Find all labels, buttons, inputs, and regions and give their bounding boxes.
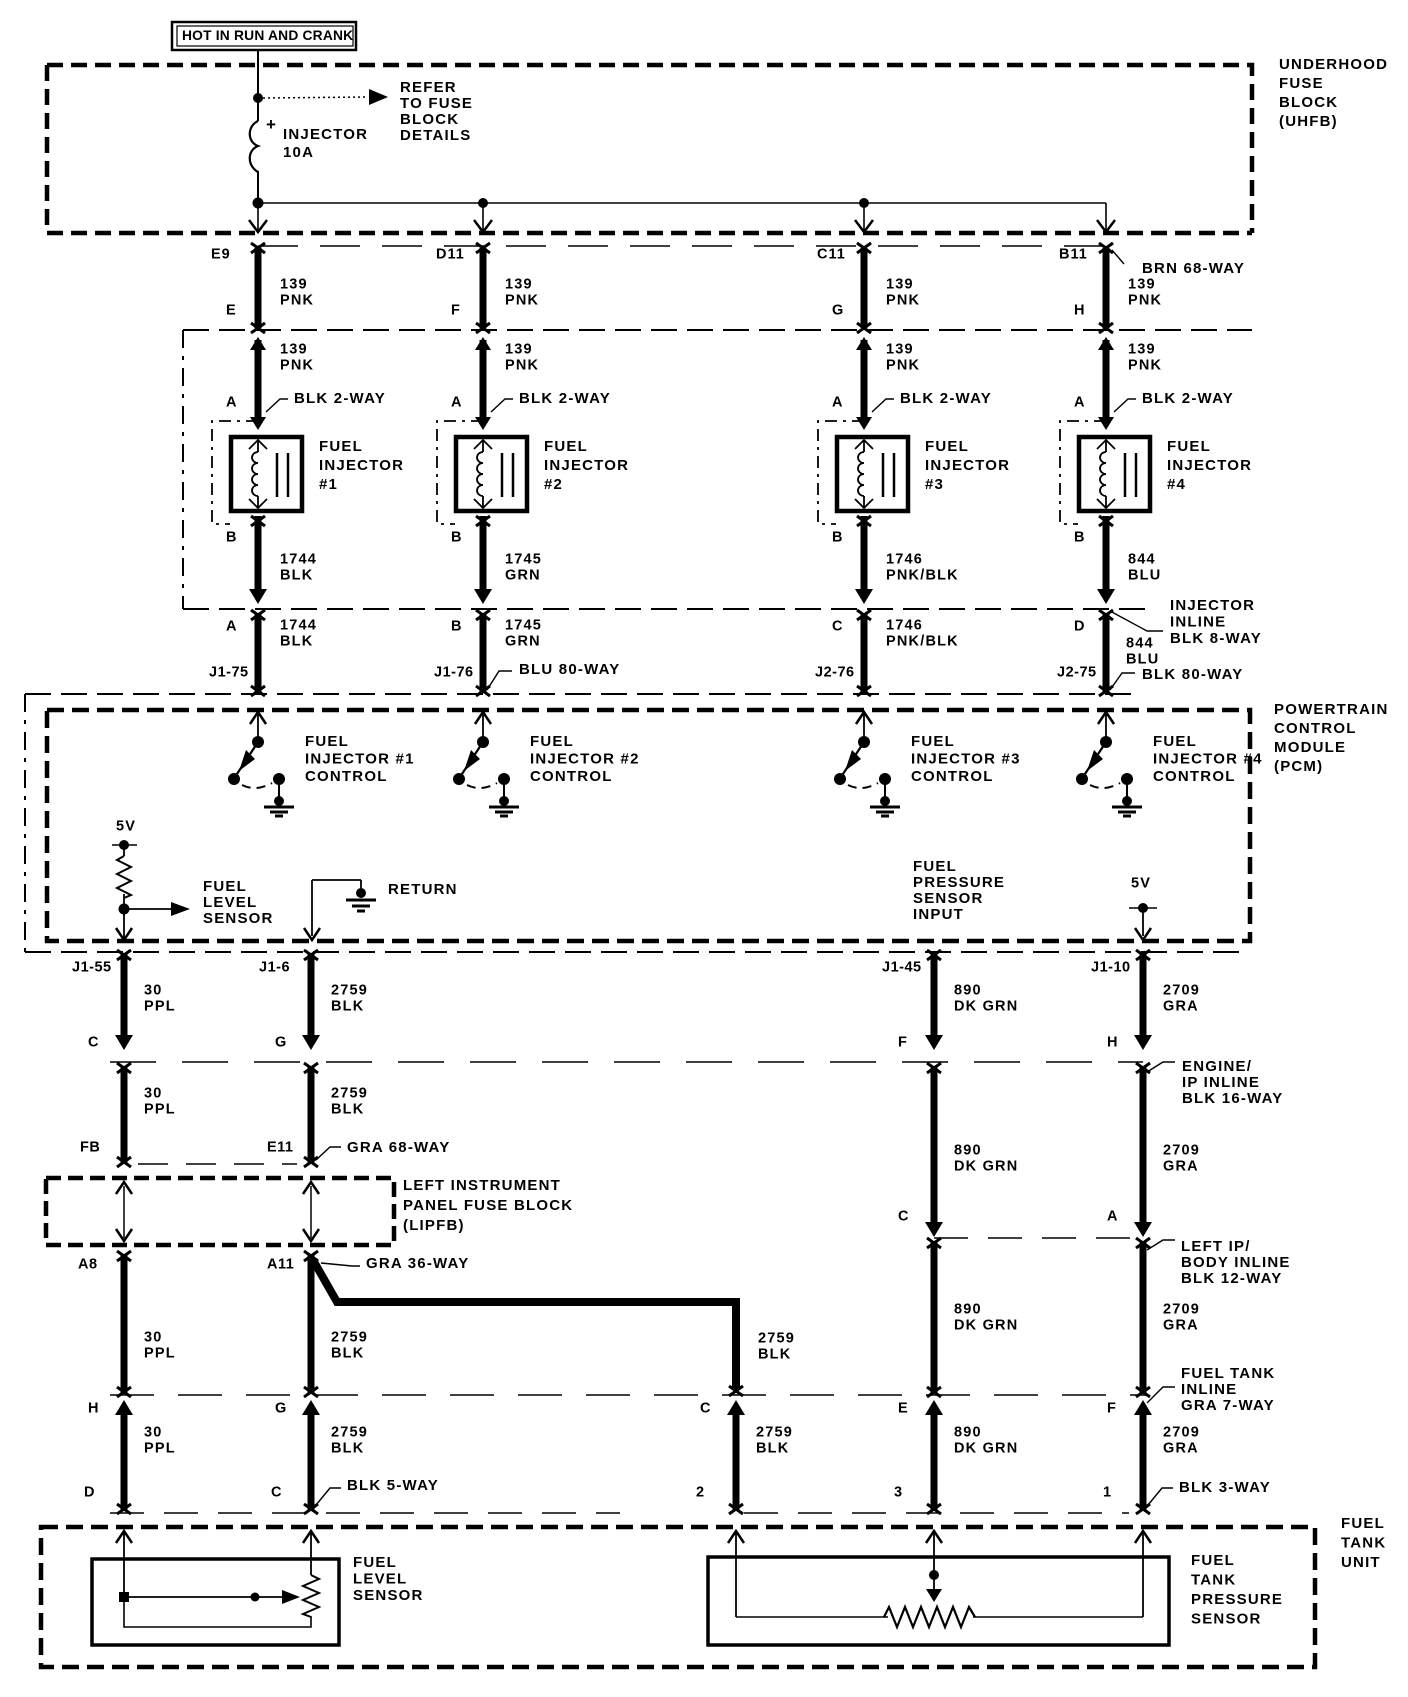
svg-text:1746: 1746	[886, 551, 923, 567]
svg-text:FUEL: FUEL	[911, 733, 955, 750]
svg-text:J2-75: J2-75	[1057, 664, 1097, 680]
svg-text:B: B	[451, 618, 462, 634]
svg-text:CONTROL: CONTROL	[1274, 720, 1357, 737]
svg-text:CONTROL: CONTROL	[305, 768, 388, 785]
svg-text:INJECTOR: INJECTOR	[319, 457, 404, 474]
svg-text:J1-6: J1-6	[259, 959, 290, 975]
svg-text:BLK: BLK	[331, 998, 364, 1014]
svg-text:2709: 2709	[1163, 982, 1200, 998]
svg-text:E11: E11	[267, 1139, 294, 1155]
svg-text:UNDERHOOD: UNDERHOOD	[1279, 56, 1388, 73]
svg-text:BLOCK: BLOCK	[400, 111, 459, 128]
svg-text:DK GRN: DK GRN	[954, 1317, 1018, 1333]
svg-text:DETAILS: DETAILS	[400, 127, 471, 144]
svg-text:2709: 2709	[1163, 1142, 1200, 1158]
svg-text:GRA 7-WAY: GRA 7-WAY	[1181, 1397, 1275, 1414]
svg-text:C: C	[700, 1400, 711, 1416]
svg-text:139: 139	[505, 276, 533, 292]
svg-text:INLINE: INLINE	[1170, 613, 1226, 630]
svg-text:A: A	[226, 618, 237, 634]
svg-text:PPL: PPL	[144, 1101, 176, 1117]
svg-text:1745: 1745	[505, 617, 542, 633]
svg-text:890: 890	[954, 1142, 982, 1158]
svg-text:#1: #1	[319, 476, 338, 493]
svg-text:1744: 1744	[280, 617, 317, 633]
svg-text:PRESSURE: PRESSURE	[913, 874, 1005, 891]
svg-text:PNK: PNK	[1128, 357, 1162, 373]
svg-text:1746: 1746	[886, 617, 923, 633]
svg-text:GRN: GRN	[505, 633, 541, 649]
svg-text:INJECTOR #2: INJECTOR #2	[530, 750, 640, 767]
svg-text:BLK: BLK	[331, 1101, 364, 1117]
svg-text:TANK: TANK	[1341, 1534, 1386, 1551]
svg-text:PNK: PNK	[505, 357, 539, 373]
svg-text:INJECTOR #4: INJECTOR #4	[1153, 750, 1263, 767]
svg-text:GRA: GRA	[1163, 1158, 1199, 1174]
svg-text:PNK: PNK	[505, 292, 539, 308]
svg-text:PNK: PNK	[886, 357, 920, 373]
svg-text:E9: E9	[211, 246, 231, 262]
svg-text:2759: 2759	[331, 1085, 368, 1101]
svg-text:A: A	[1074, 394, 1086, 410]
svg-text:BLK 12-WAY: BLK 12-WAY	[1181, 1270, 1282, 1287]
svg-text:5V: 5V	[116, 818, 136, 834]
svg-text:2759: 2759	[758, 1330, 795, 1346]
svg-text:PANEL FUSE BLOCK: PANEL FUSE BLOCK	[403, 1197, 573, 1214]
svg-text:SENSOR: SENSOR	[913, 890, 984, 907]
svg-text:B: B	[832, 529, 843, 545]
svg-text:30: 30	[144, 1085, 163, 1101]
svg-text:INPUT: INPUT	[913, 906, 964, 923]
svg-text:BLOCK: BLOCK	[1279, 94, 1338, 111]
svg-text:E: E	[898, 1400, 909, 1416]
svg-text:139: 139	[1128, 276, 1156, 292]
svg-text:(PCM): (PCM)	[1274, 758, 1323, 775]
svg-text:BLK 8-WAY: BLK 8-WAY	[1170, 630, 1262, 647]
svg-text:PNK/BLK: PNK/BLK	[886, 567, 959, 583]
svg-text:BLK: BLK	[331, 1440, 364, 1456]
svg-text:C: C	[271, 1484, 282, 1500]
svg-text:D11: D11	[436, 246, 465, 262]
svg-text:INJECTOR #1: INJECTOR #1	[305, 750, 415, 767]
svg-text:A: A	[832, 394, 844, 410]
svg-text:BLK 5-WAY: BLK 5-WAY	[347, 1477, 439, 1494]
svg-text:139: 139	[280, 341, 308, 357]
svg-text:DK GRN: DK GRN	[954, 998, 1018, 1014]
svg-text:FUEL: FUEL	[1341, 1515, 1385, 1532]
svg-text:30: 30	[144, 1329, 163, 1345]
svg-text:PNK: PNK	[886, 292, 920, 308]
svg-text:1744: 1744	[280, 551, 317, 567]
svg-text:BLK 16-WAY: BLK 16-WAY	[1182, 1090, 1283, 1107]
svg-text:LEFT IP/: LEFT IP/	[1181, 1238, 1251, 1255]
svg-text:(LIPFB): (LIPFB)	[403, 1217, 465, 1234]
svg-text:INJECTOR: INJECTOR	[544, 457, 629, 474]
svg-text:BLK 3-WAY: BLK 3-WAY	[1179, 1479, 1271, 1496]
svg-text:B: B	[451, 529, 462, 545]
svg-text:FUEL: FUEL	[1167, 438, 1211, 455]
svg-text:A8: A8	[78, 1256, 98, 1272]
svg-text:HOT IN RUN AND CRANK: HOT IN RUN AND CRANK	[182, 28, 353, 43]
svg-text:FUEL: FUEL	[203, 878, 247, 895]
svg-text:139: 139	[886, 341, 914, 357]
svg-text:890: 890	[954, 982, 982, 998]
svg-text:GRA: GRA	[1163, 1440, 1199, 1456]
svg-text:SENSOR: SENSOR	[1191, 1610, 1262, 1627]
svg-text:J1-75: J1-75	[209, 664, 249, 680]
svg-text:FUEL: FUEL	[913, 858, 957, 875]
svg-text:E: E	[226, 302, 237, 318]
svg-text:2709: 2709	[1163, 1301, 1200, 1317]
svg-text:INLINE: INLINE	[1181, 1381, 1237, 1398]
svg-text:CONTROL: CONTROL	[530, 768, 613, 785]
svg-text:139: 139	[1128, 341, 1156, 357]
svg-text:J1-10: J1-10	[1091, 959, 1131, 975]
svg-text:G: G	[275, 1400, 287, 1416]
svg-text:FUEL: FUEL	[1153, 733, 1197, 750]
svg-text:FUEL: FUEL	[925, 438, 969, 455]
svg-text:FUEL: FUEL	[544, 438, 588, 455]
svg-text:FUEL: FUEL	[530, 733, 574, 750]
svg-text:30: 30	[144, 982, 163, 998]
svg-text:C: C	[898, 1208, 909, 1224]
svg-text:INJECTOR #3: INJECTOR #3	[911, 750, 1021, 767]
svg-text:D: D	[84, 1484, 95, 1500]
svg-text:GRA: GRA	[1163, 998, 1199, 1014]
svg-text:#4: #4	[1167, 476, 1186, 493]
svg-text:REFER: REFER	[400, 79, 457, 96]
svg-text:F: F	[898, 1034, 908, 1050]
svg-text:G: G	[275, 1034, 287, 1050]
svg-text:POWERTRAIN: POWERTRAIN	[1274, 701, 1389, 718]
svg-text:C: C	[832, 618, 843, 634]
svg-text:BLK 2-WAY: BLK 2-WAY	[294, 390, 386, 407]
svg-text:2: 2	[696, 1484, 705, 1500]
svg-text:F: F	[1107, 1400, 1117, 1416]
svg-text:844: 844	[1128, 551, 1156, 567]
svg-text:A: A	[226, 394, 238, 410]
svg-text:BODY INLINE: BODY INLINE	[1181, 1254, 1291, 1271]
svg-text:BLK 2-WAY: BLK 2-WAY	[900, 390, 992, 407]
svg-text:J1-45: J1-45	[882, 959, 922, 975]
svg-text:B: B	[226, 529, 237, 545]
svg-text:B11: B11	[1059, 246, 1088, 262]
svg-text:2759: 2759	[331, 1329, 368, 1345]
svg-text:BLK 2-WAY: BLK 2-WAY	[519, 390, 611, 407]
svg-text:890: 890	[954, 1301, 982, 1317]
svg-text:LEVEL: LEVEL	[353, 1570, 407, 1587]
svg-text:DK GRN: DK GRN	[954, 1440, 1018, 1456]
svg-text:2759: 2759	[331, 1424, 368, 1440]
svg-text:H: H	[88, 1400, 99, 1416]
svg-text:DK GRN: DK GRN	[954, 1158, 1018, 1174]
svg-text:BLK: BLK	[756, 1440, 789, 1456]
svg-text:CONTROL: CONTROL	[911, 768, 994, 785]
svg-text:BLK: BLK	[758, 1346, 791, 1362]
svg-text:BLU 80-WAY: BLU 80-WAY	[519, 661, 620, 678]
svg-text:5V: 5V	[1131, 875, 1151, 891]
svg-text:PPL: PPL	[144, 1345, 176, 1361]
svg-text:2759: 2759	[331, 982, 368, 998]
svg-text:INJECTOR: INJECTOR	[283, 126, 368, 143]
svg-text:FUEL: FUEL	[353, 1554, 397, 1571]
svg-text:1745: 1745	[505, 551, 542, 567]
svg-text:BLK: BLK	[280, 633, 313, 649]
svg-text:10A: 10A	[283, 144, 314, 161]
svg-text:INJECTOR: INJECTOR	[1167, 457, 1252, 474]
svg-text:FUSE: FUSE	[1279, 75, 1324, 92]
svg-text:PPL: PPL	[144, 998, 176, 1014]
svg-text:#2: #2	[544, 476, 563, 493]
svg-text:PNK: PNK	[280, 292, 314, 308]
svg-text:CONTROL: CONTROL	[1153, 768, 1236, 785]
svg-text:FB: FB	[80, 1139, 100, 1155]
svg-text:GRA 68-WAY: GRA 68-WAY	[347, 1139, 450, 1156]
svg-text:PNK: PNK	[1128, 292, 1162, 308]
svg-text:BLU: BLU	[1128, 567, 1161, 583]
svg-text:UNIT: UNIT	[1341, 1554, 1381, 1571]
svg-text:INJECTOR: INJECTOR	[1170, 597, 1255, 614]
svg-text:PPL: PPL	[144, 1440, 176, 1456]
svg-text:MODULE: MODULE	[1274, 739, 1346, 756]
svg-text:GRA: GRA	[1163, 1317, 1199, 1333]
svg-text:FUEL TANK: FUEL TANK	[1181, 1365, 1275, 1382]
svg-text:C: C	[88, 1034, 99, 1050]
svg-text:C11: C11	[817, 246, 846, 262]
svg-text:PRESSURE: PRESSURE	[1191, 1591, 1283, 1608]
svg-text:F: F	[451, 302, 461, 318]
svg-text:H: H	[1074, 302, 1085, 318]
svg-text:FUEL: FUEL	[319, 438, 363, 455]
svg-text:B: B	[1074, 529, 1085, 545]
svg-text:#3: #3	[925, 476, 944, 493]
svg-text:BLK 80-WAY: BLK 80-WAY	[1142, 666, 1243, 683]
svg-text:GRN: GRN	[505, 567, 541, 583]
svg-text:FUEL: FUEL	[305, 733, 349, 750]
svg-text:1: 1	[1103, 1484, 1112, 1500]
svg-text:TO FUSE: TO FUSE	[400, 95, 473, 112]
svg-text:844: 844	[1126, 635, 1154, 651]
svg-text:+: +	[266, 115, 276, 134]
svg-text:IP INLINE: IP INLINE	[1182, 1074, 1260, 1091]
svg-text:BRN 68-WAY: BRN 68-WAY	[1142, 260, 1245, 277]
svg-text:J2-76: J2-76	[815, 664, 855, 680]
svg-text:ENGINE/: ENGINE/	[1182, 1058, 1252, 1075]
svg-text:890: 890	[954, 1424, 982, 1440]
svg-text:A: A	[451, 394, 463, 410]
svg-text:SENSOR: SENSOR	[203, 910, 274, 927]
svg-text:2759: 2759	[756, 1424, 793, 1440]
svg-text:FUEL: FUEL	[1191, 1552, 1235, 1569]
svg-text:30: 30	[144, 1424, 163, 1440]
svg-text:LEFT INSTRUMENT: LEFT INSTRUMENT	[403, 1177, 561, 1194]
svg-text:PNK/BLK: PNK/BLK	[886, 633, 959, 649]
svg-text:INJECTOR: INJECTOR	[925, 457, 1010, 474]
svg-text:GRA 36-WAY: GRA 36-WAY	[366, 1255, 469, 1272]
svg-text:BLK 2-WAY: BLK 2-WAY	[1142, 390, 1234, 407]
svg-text:(UHFB): (UHFB)	[1279, 113, 1338, 130]
svg-text:A: A	[1107, 1208, 1118, 1224]
svg-text:BLK: BLK	[280, 567, 313, 583]
svg-text:J1-76: J1-76	[434, 664, 474, 680]
svg-text:BLK: BLK	[331, 1345, 364, 1361]
svg-text:J1-55: J1-55	[72, 959, 112, 975]
svg-text:139: 139	[280, 276, 308, 292]
svg-text:3: 3	[894, 1484, 903, 1500]
svg-text:G: G	[832, 302, 844, 318]
svg-text:D: D	[1074, 618, 1085, 634]
svg-text:H: H	[1107, 1034, 1118, 1050]
svg-text:2709: 2709	[1163, 1424, 1200, 1440]
svg-text:139: 139	[505, 341, 533, 357]
svg-text:A11: A11	[267, 1256, 294, 1272]
svg-text:TANK: TANK	[1191, 1571, 1236, 1588]
svg-text:139: 139	[886, 276, 914, 292]
svg-text:SENSOR: SENSOR	[353, 1587, 424, 1604]
svg-text:RETURN: RETURN	[388, 881, 458, 898]
svg-text:PNK: PNK	[280, 357, 314, 373]
svg-text:LEVEL: LEVEL	[203, 894, 257, 911]
